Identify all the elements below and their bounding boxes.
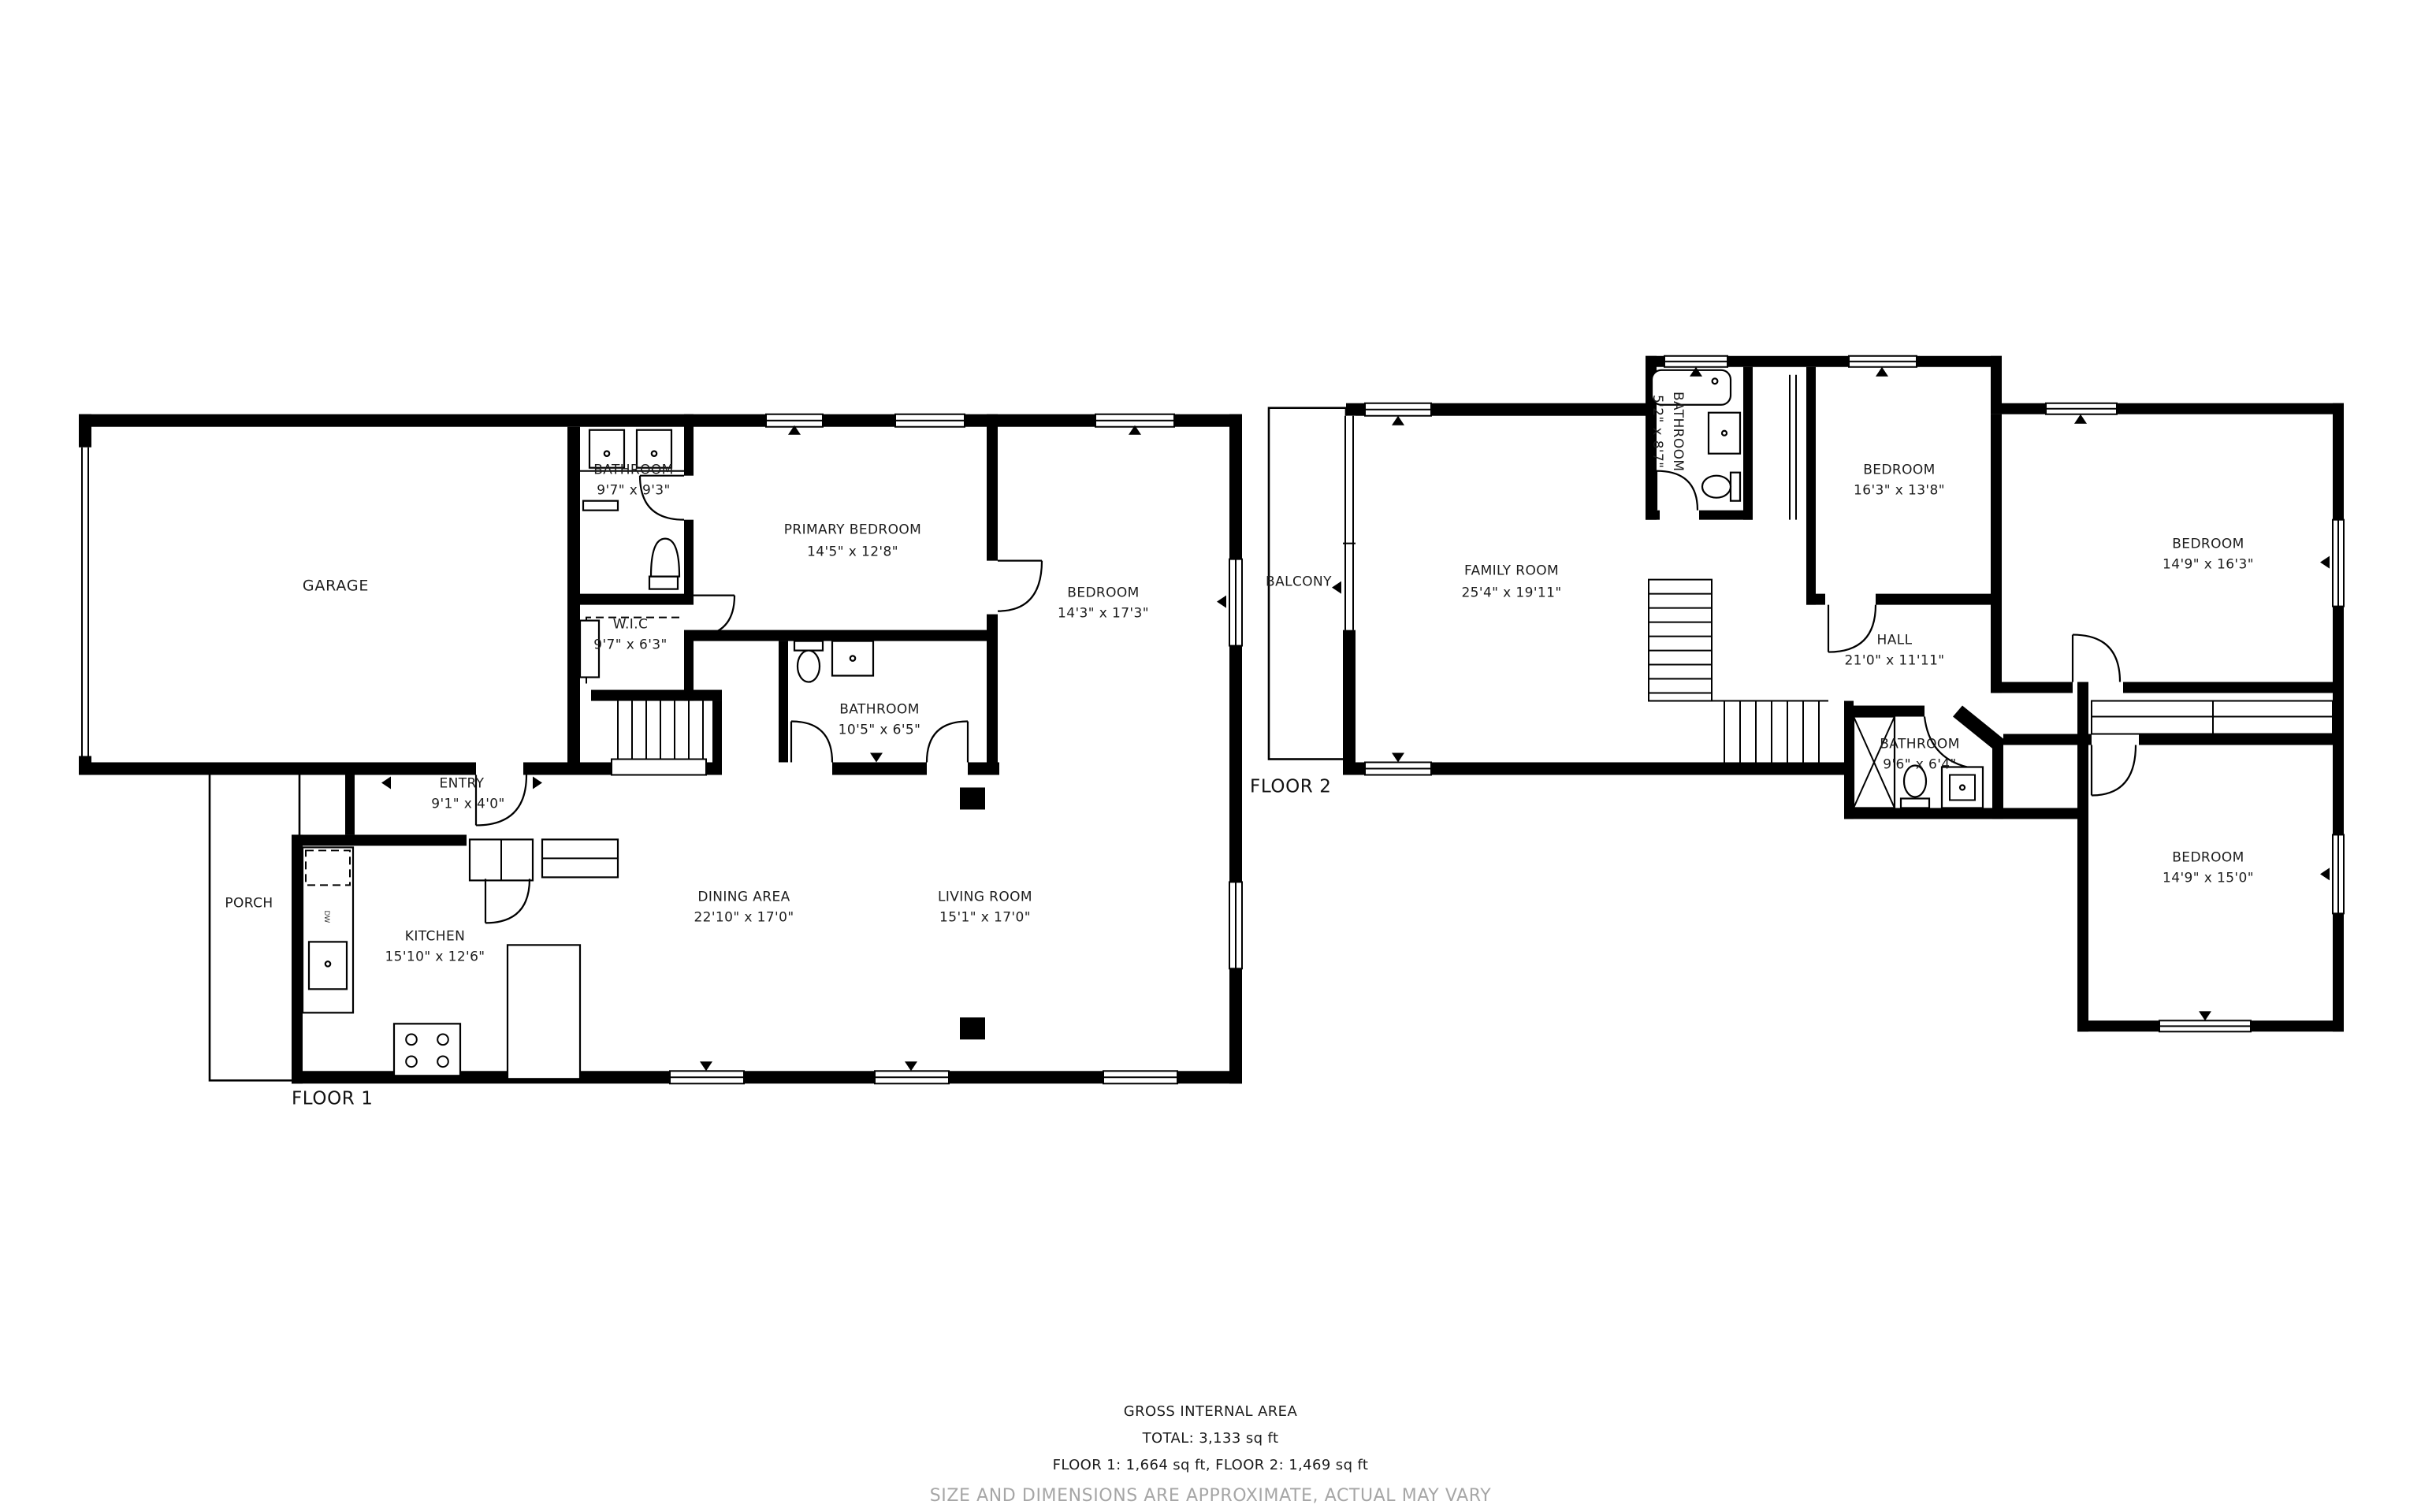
toilet-bowl (798, 651, 820, 682)
bathroom-mid-label: BATHROOM (839, 702, 920, 718)
toilet-tank (1731, 473, 1740, 501)
floor-plan-page: GARAGE BATHROOM 9'7" x 9'3" PRIMARY BEDR… (0, 0, 2421, 1512)
bathroom-small-label: BATHROOM (1670, 392, 1686, 471)
shelf (583, 501, 618, 511)
living-dims: 15'1" x 17'0" (939, 909, 1031, 925)
toilet-tank (794, 641, 823, 651)
kitchen-label: KITCHEN (405, 928, 465, 944)
footer-total: TOTAL: 3,133 sq ft (1142, 1430, 1279, 1447)
bedroom-c-label: BEDROOM (2172, 849, 2244, 865)
background (0, 0, 2421, 1512)
bedroom-a-label: BEDROOM (1863, 463, 1935, 478)
hall-dims: 21'0" x 11'11" (1844, 653, 1944, 669)
entry-label: ENTRY (440, 775, 485, 791)
floor-plan-drawing: GARAGE BATHROOM 9'7" x 9'3" PRIMARY BEDR… (0, 0, 2421, 1512)
family-room-dims: 25'4" x 19'11" (1461, 585, 1561, 601)
bedroom-label: BEDROOM (1067, 585, 1139, 601)
porch-label: PORCH (225, 895, 273, 911)
balcony-label: BALCONY (1266, 574, 1332, 590)
bedroom-b-label: BEDROOM (2172, 537, 2244, 552)
bedroom-a-dims: 16'3" x 13'8" (1854, 483, 1945, 499)
kitchen-dims: 15'10" x 12'6" (385, 949, 485, 964)
garage-label: GARAGE (303, 578, 369, 595)
dining-label: DINING AREA (697, 889, 790, 905)
bathroom-hall-label: BATHROOM (1880, 737, 1960, 752)
counter (508, 945, 580, 1079)
dishwasher-label: DW (322, 910, 330, 923)
family-room-label: FAMILY ROOM (1464, 563, 1559, 579)
stove (394, 1023, 460, 1075)
wic-label: W.I.C (613, 617, 649, 633)
primary-bedroom-label: PRIMARY BEDROOM (784, 522, 922, 538)
garage-door (79, 448, 91, 756)
wic-dims: 9'7" x 6'3" (593, 637, 667, 653)
primary-bedroom-dims: 14'5" x 12'8" (807, 544, 898, 560)
bathroom-mid-dims: 10'5" x 6'5" (839, 723, 921, 738)
entry-dims: 9'1" x 4'0" (431, 796, 504, 812)
bathroom-top-dims: 9'7" x 9'3" (597, 483, 670, 499)
bedroom-c-dims: 14'9" x 15'0" (2163, 870, 2254, 886)
dining-dims: 22'10" x 17'0" (694, 909, 794, 925)
floor1-caption: FLOOR 1 (292, 1088, 374, 1109)
footer-floor-areas: FLOOR 1: 1,664 sq ft, FLOOR 2: 1,469 sq … (1053, 1457, 1369, 1473)
toilet-tank (1901, 798, 1929, 808)
bedroom-dims: 14'3" x 17'3" (1058, 606, 1149, 622)
bathroom-top-label: BATHROOM (593, 463, 674, 478)
bathroom-mid-fixtures (794, 641, 873, 682)
floor2-caption: FLOOR 2 (1250, 776, 1332, 797)
hall-label: HALL (1877, 633, 1913, 648)
living-label: LIVING ROOM (938, 889, 1032, 905)
bathroom-hall-dims: 9'6" x 6'4" (1883, 756, 1956, 772)
bathroom-small-dims: 5'2" x 8'7" (1649, 395, 1665, 468)
footer-disclaimer: SIZE AND DIMENSIONS ARE APPROXIMATE, ACT… (930, 1486, 1492, 1506)
bedroom-b-dims: 14'9" x 16'3" (2163, 557, 2254, 573)
footer-gross-area: GROSS INTERNAL AREA (1124, 1403, 1298, 1420)
toilet-tank (649, 577, 678, 589)
toilet-bowl (1702, 476, 1731, 498)
